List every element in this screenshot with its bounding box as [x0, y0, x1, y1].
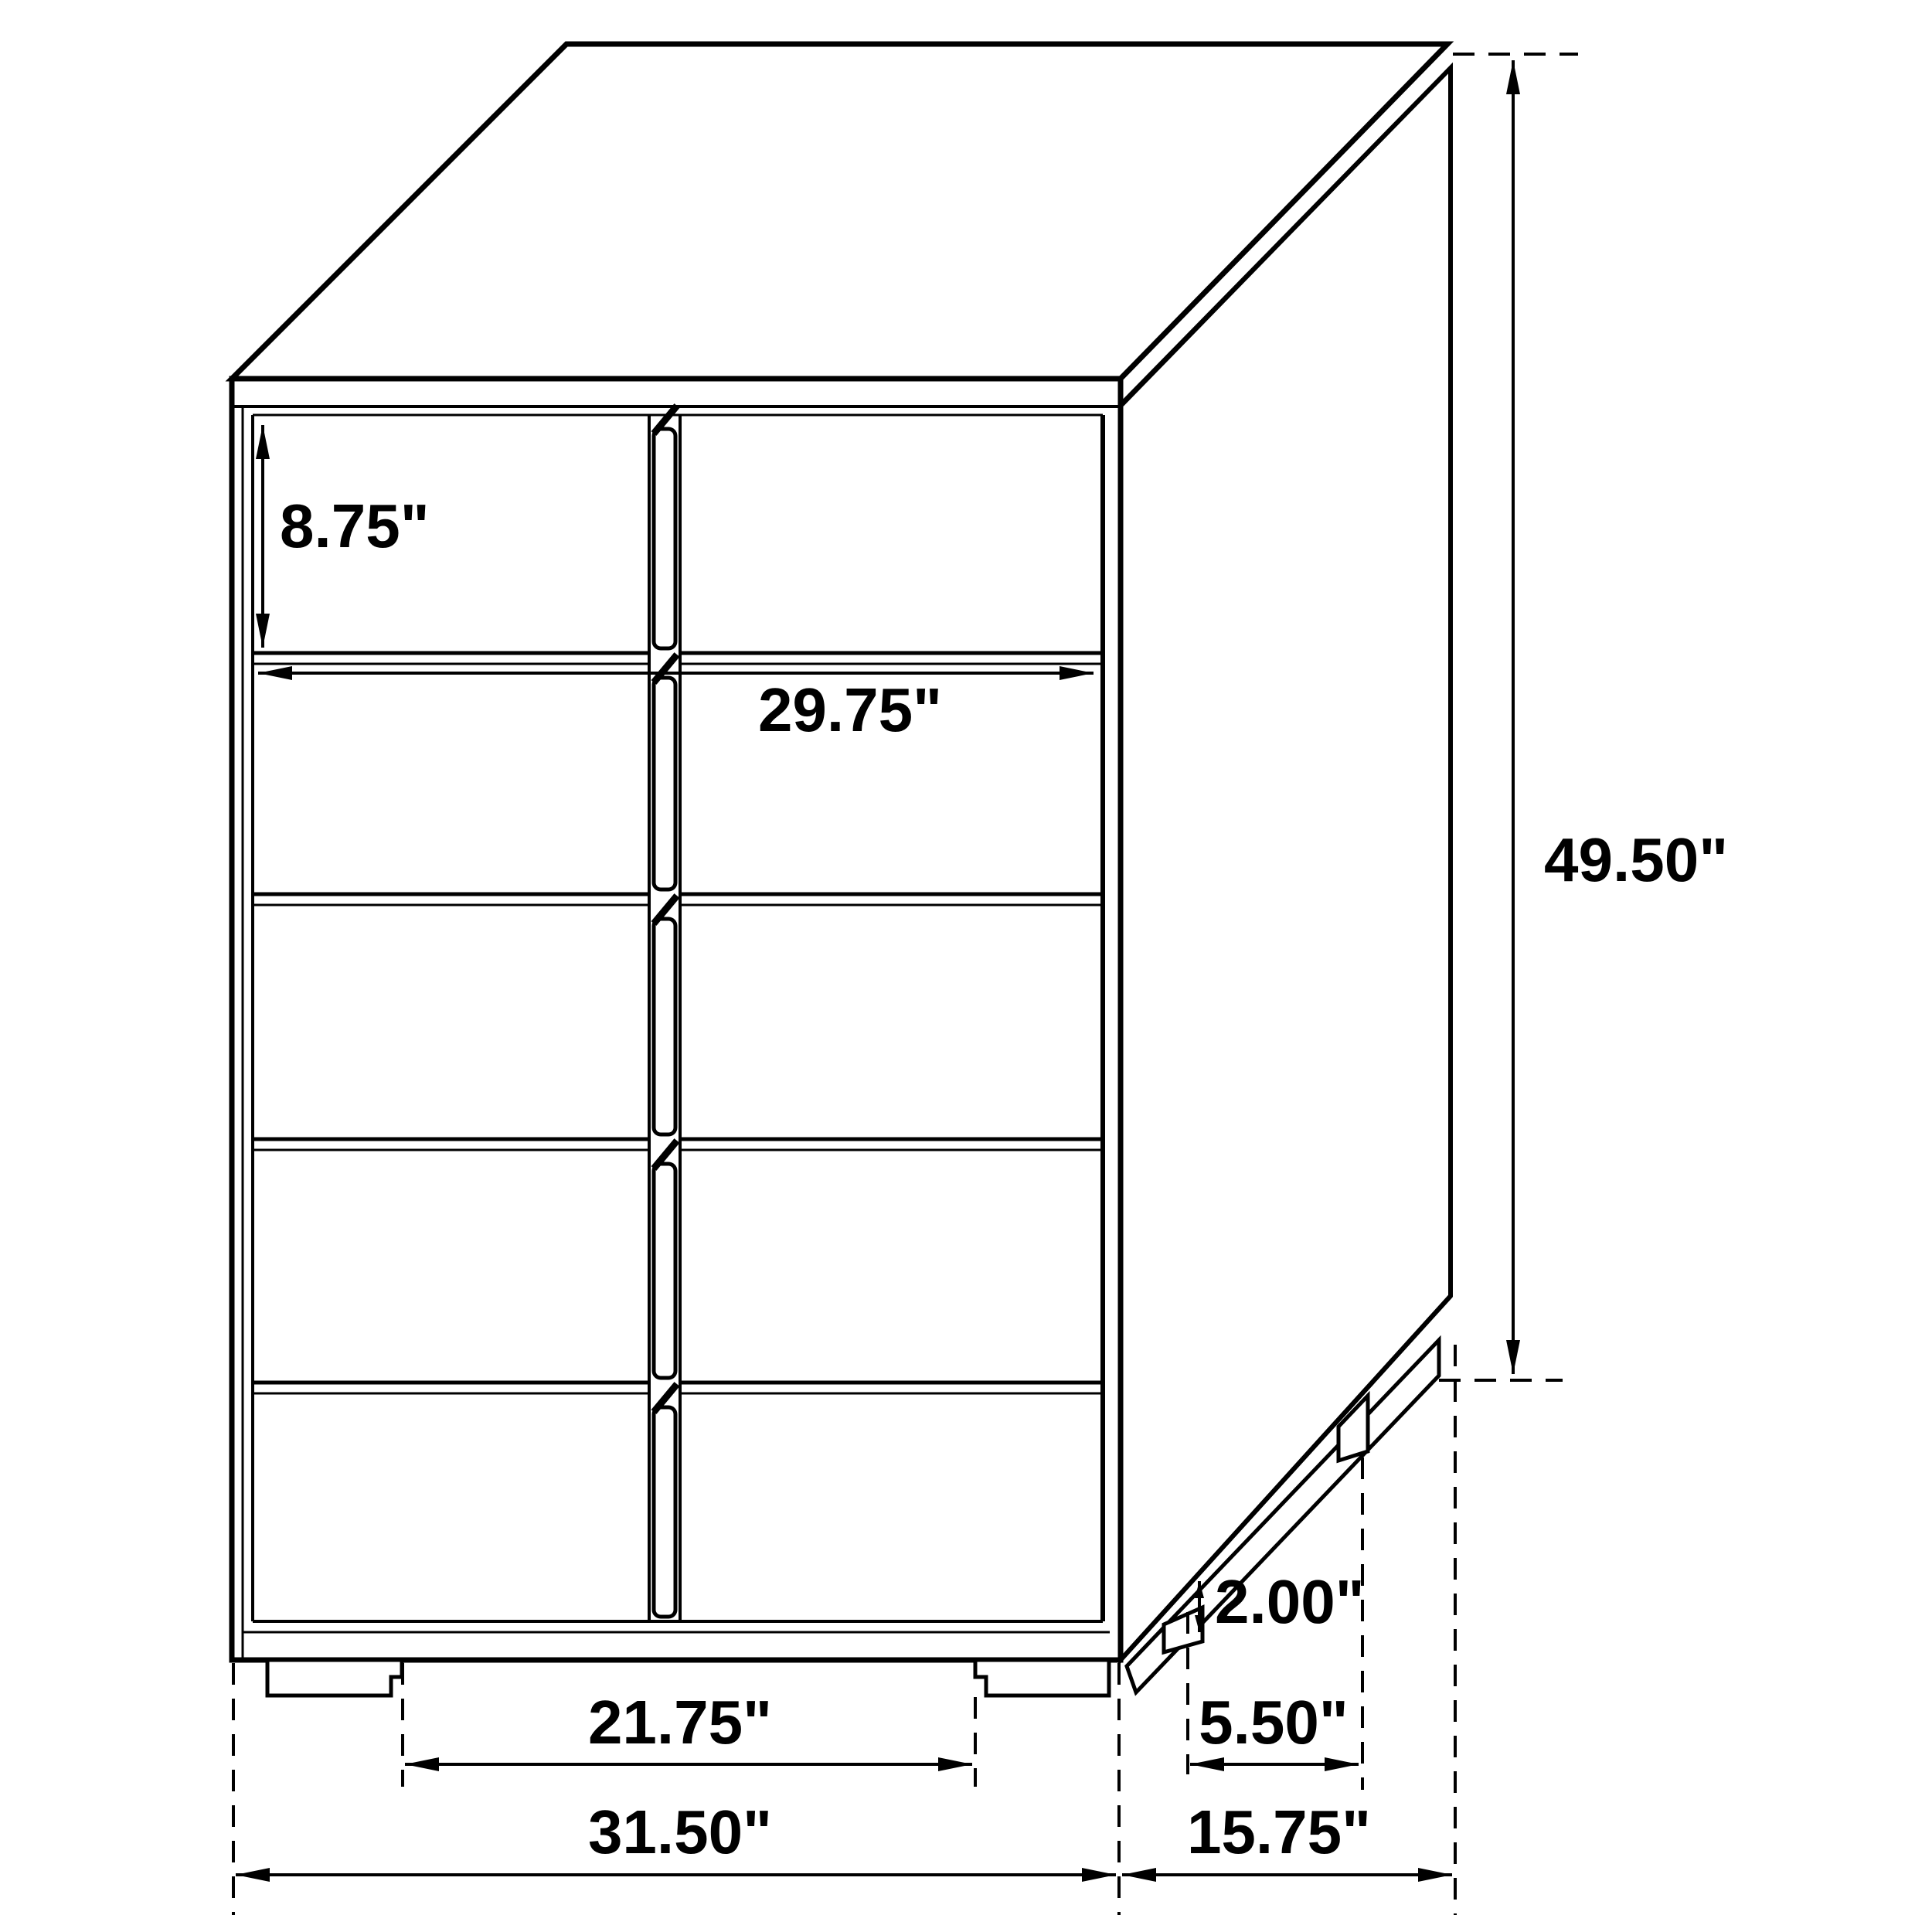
- handle-bar: [654, 429, 675, 648]
- dim-label-drawer-height: 8.75": [280, 492, 430, 560]
- dim-label-front-feet-span: 21.75": [588, 1688, 772, 1757]
- dim-label-foot-height: 2.00": [1215, 1567, 1365, 1636]
- handle-bar: [654, 919, 675, 1134]
- dim-label-interior-width: 29.75": [758, 675, 942, 744]
- front-right-foot: [975, 1660, 1109, 1696]
- front-left-foot: [267, 1660, 402, 1696]
- drawer-handles: [654, 406, 677, 1617]
- handle-bar: [654, 1407, 675, 1617]
- dimension-drawing: 8.75" 29.75" 49.50" 2.00" 5.50" 21.75" 3…: [0, 0, 1932, 1932]
- drawing-canvas: 8.75" 29.75" 49.50" 2.00" 5.50" 21.75" 3…: [0, 0, 1932, 1932]
- dim-label-foot-depth: 5.50": [1199, 1688, 1349, 1757]
- dim-front-feet-span: 21.75": [403, 1663, 975, 1787]
- side-front-foot: [1164, 1607, 1202, 1652]
- dim-foot-height: 2.00": [1199, 1567, 1365, 1636]
- dim-label-overall-depth: 15.75": [1187, 1798, 1371, 1866]
- dim-overall-height: 49.50": [1439, 54, 1728, 1380]
- dim-label-overall-width: 31.50": [588, 1798, 772, 1866]
- handle-bar: [654, 678, 675, 889]
- handle-bar: [654, 1164, 675, 1378]
- dim-label-overall-height: 49.50": [1544, 825, 1728, 894]
- chest-body: [232, 44, 1451, 1696]
